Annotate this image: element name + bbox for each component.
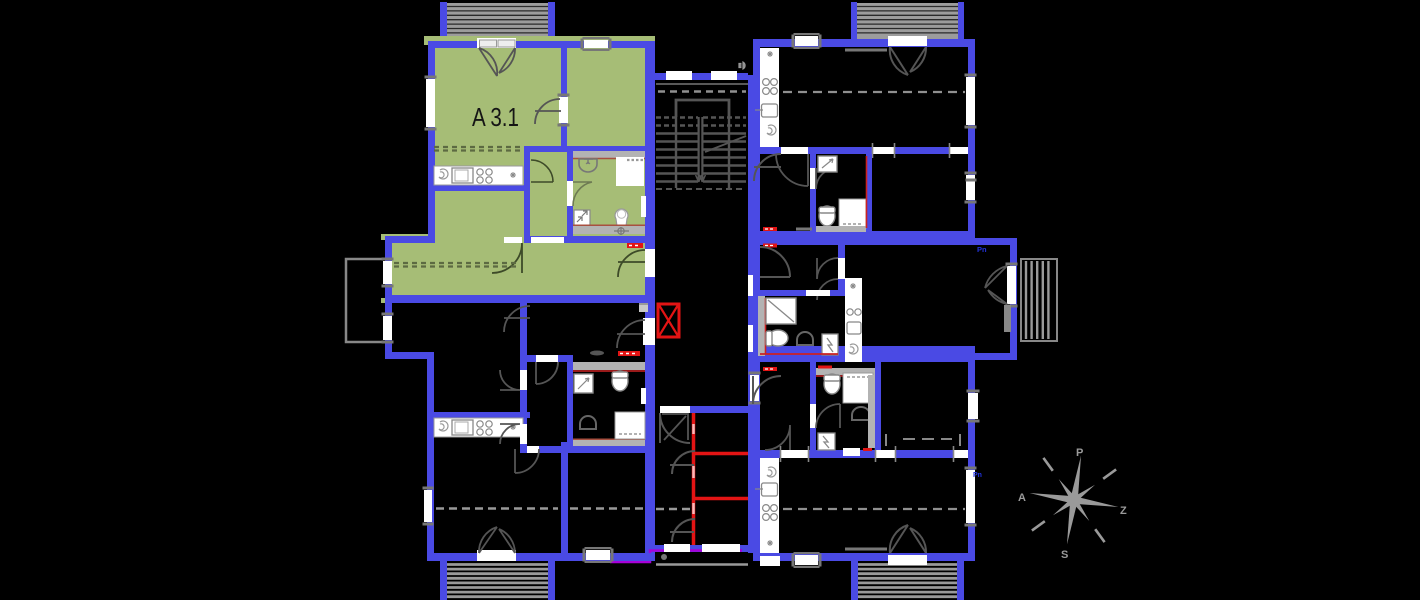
svg-text:Pn: Pn [977,245,987,254]
svg-text:Pn: Pn [973,472,982,479]
svg-text:A: A [1018,492,1026,504]
svg-text:Z: Z [1120,505,1127,517]
svg-text:P: P [1076,447,1083,459]
svg-text:A 3.1: A 3.1 [472,102,519,132]
svg-text:S: S [1061,549,1068,561]
